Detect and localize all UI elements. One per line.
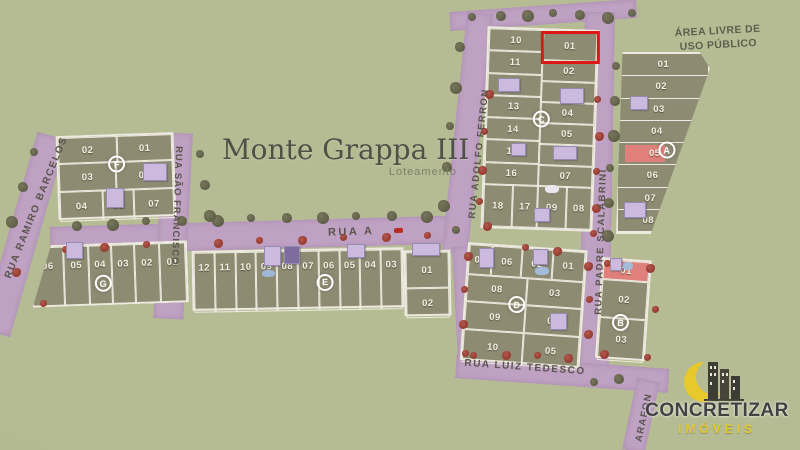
lot-C-18: 18 (483, 184, 514, 227)
building-icon (498, 78, 520, 92)
tree-icon (142, 217, 150, 225)
concretizar-logo: CONCRETIZAR IMÓVEIS (640, 356, 794, 436)
tree-icon (247, 214, 255, 222)
tree-icon (608, 130, 620, 142)
building-icon (143, 163, 167, 181)
title-subtitle: Loteamento (222, 166, 457, 178)
tree-icon (549, 9, 557, 17)
tree-icon (438, 200, 450, 212)
lot-C-10: 10 (489, 28, 544, 52)
tree-icon (200, 180, 210, 190)
flower-icon (483, 222, 492, 231)
lot-D-03: 03 (526, 278, 583, 309)
pool-icon (545, 185, 559, 193)
building-icon (610, 258, 622, 271)
tree-icon (196, 150, 204, 158)
public-area-label: ÁREA LIVRE DE USO PÚBLICO (647, 21, 788, 56)
lot-C-11: 11 (488, 50, 543, 74)
lot-E-12: 12 (194, 252, 216, 312)
tree-icon (18, 182, 28, 192)
building-icon (624, 202, 646, 218)
building-icon (534, 208, 550, 222)
lot-C-07: 07 (538, 165, 593, 188)
tree-icon (6, 216, 18, 228)
lot-A-06: 06 (618, 165, 708, 187)
tree-icon (468, 13, 476, 21)
lot-A-04: 04 (618, 121, 708, 143)
lot-G-03: 03 (111, 244, 136, 307)
tree-icon (107, 219, 119, 231)
title-text: Monte Grappa III (222, 133, 457, 166)
lot-C-16: 16 (484, 162, 539, 186)
building-icon (533, 249, 548, 265)
lot-A-01: 01 (618, 54, 708, 76)
tree-icon (282, 213, 292, 223)
tree-icon (30, 148, 38, 156)
building-icon (106, 188, 124, 208)
tree-icon (590, 378, 598, 386)
block-G: 060504030201G (29, 240, 189, 307)
lot-D-06: 06 (491, 246, 523, 278)
logo-building-icon (681, 356, 753, 404)
building-icon (412, 243, 440, 256)
lot-C-05: 05 (539, 123, 594, 146)
building-icon (264, 246, 281, 266)
tree-icon (628, 9, 636, 17)
tree-icon (446, 122, 454, 130)
tree-icon (496, 11, 506, 21)
tree-icon (610, 96, 620, 106)
tree-icon (317, 212, 329, 224)
pool-icon (262, 270, 275, 277)
block-letter-A: A (658, 142, 675, 159)
lot-C-08: 08 (566, 187, 592, 230)
lot-E-01: 01 (405, 252, 449, 289)
building-icon (553, 146, 577, 160)
lot-E-04: 04 (360, 250, 382, 310)
tree-icon (522, 10, 534, 22)
lot-F-01: 01 (117, 134, 173, 162)
block-C: 101112131415160102030405060718170908C (481, 26, 600, 232)
lot-G-06: 06 (31, 247, 65, 310)
logo-subbrand-text: IMÓVEIS (640, 422, 794, 436)
lot-F-04: 04 (60, 190, 104, 221)
building-icon (66, 242, 83, 259)
tree-icon (575, 10, 585, 20)
tree-icon (421, 211, 433, 223)
tree-icon (614, 374, 624, 384)
lot-E-03: 03 (381, 249, 403, 309)
pool-icon (623, 262, 633, 270)
flower-icon (652, 306, 659, 313)
flower-icon (646, 264, 655, 273)
building-icon (479, 248, 494, 268)
building-icon (560, 88, 584, 104)
building-icon (284, 246, 300, 264)
tree-icon (612, 62, 620, 70)
building-icon (630, 96, 648, 110)
building-icon (347, 244, 365, 258)
building-icon (511, 143, 526, 156)
tree-icon (352, 212, 360, 220)
lot-E-02: 02 (406, 288, 450, 319)
pool-icon (535, 267, 549, 275)
tree-icon (450, 82, 462, 94)
street-label-rua-a: RUA A (328, 225, 375, 239)
building-icon (550, 313, 567, 330)
tree-icon (455, 42, 465, 52)
subdivision-map: RUA A RUA SÃO FRANCISCO RUA RAMIRO BARCE… (0, 0, 800, 450)
lot-G-02: 02 (134, 243, 161, 306)
tree-icon (204, 210, 216, 222)
block-E: 0102 (403, 250, 451, 317)
lot-E-10: 10 (235, 252, 257, 312)
lot-E-05: 05 (339, 250, 361, 310)
tree-icon (387, 211, 397, 221)
lot-E-11: 11 (214, 252, 236, 312)
block-C-bottom-row: 18170908 (483, 184, 592, 230)
tree-icon (602, 12, 614, 24)
plan-title: Monte Grappa III Loteamento (222, 133, 457, 178)
highlighted-lot-outline (541, 31, 600, 64)
logo-brand-text: CONCRETIZAR (640, 400, 794, 422)
car-icon (394, 228, 403, 233)
block-C-left-column: 10111213141516 (484, 28, 543, 186)
tree-icon (452, 226, 460, 234)
lot-F-07: 07 (134, 188, 175, 219)
tree-icon (72, 221, 82, 231)
